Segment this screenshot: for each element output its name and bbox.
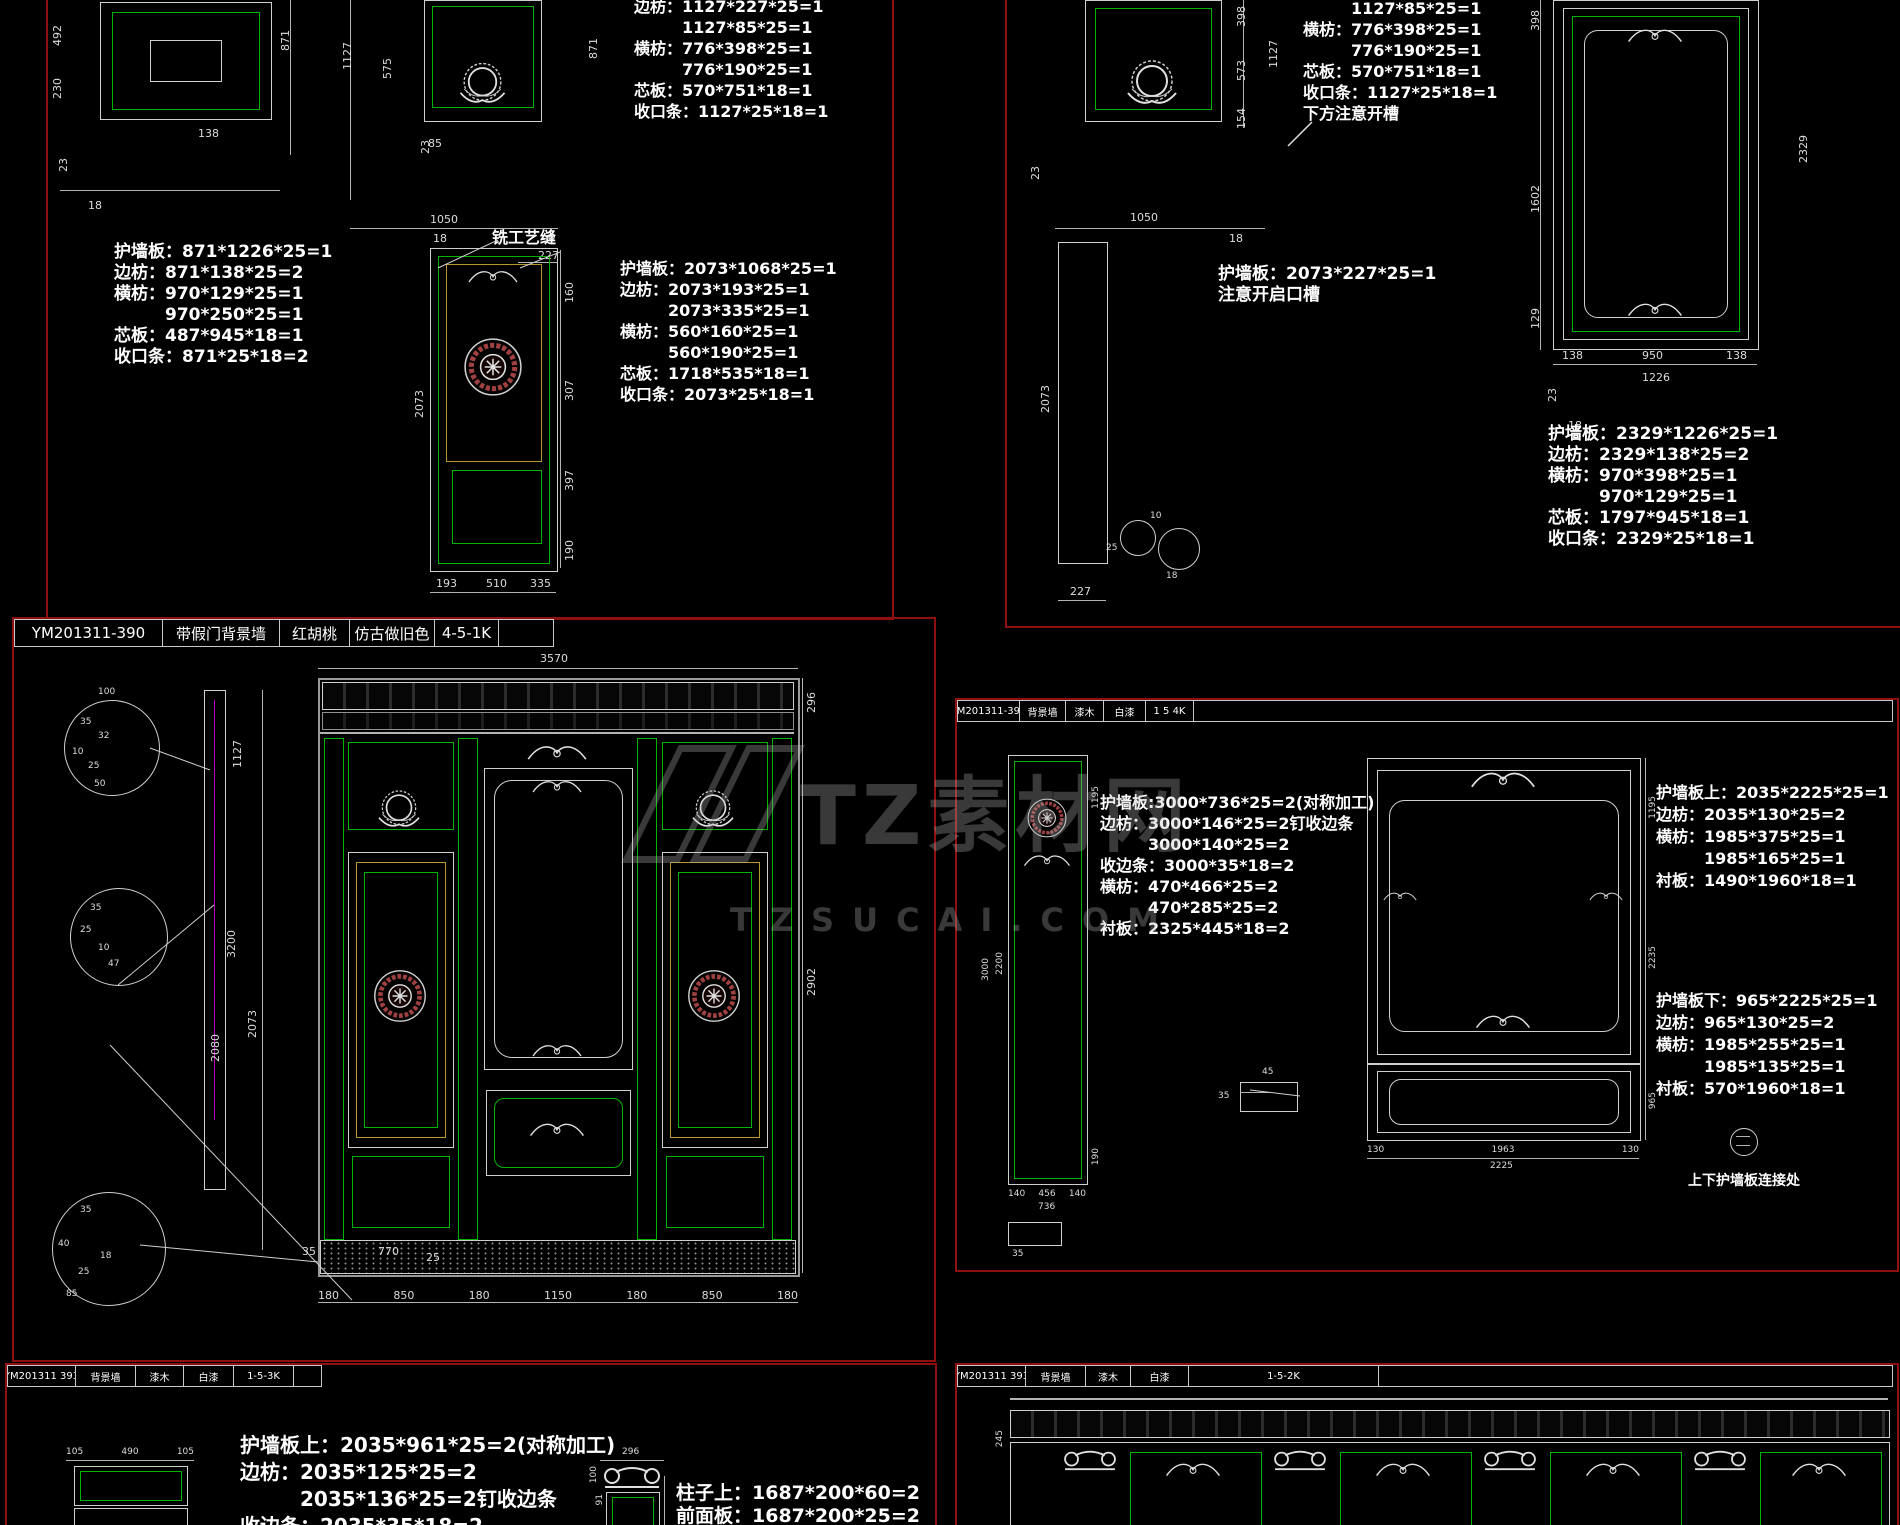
spec-line: 横枋：1985*255*25=1	[1656, 1034, 1877, 1056]
spec-line: 衬板：2325*445*18=2	[1100, 918, 1375, 939]
column-capital	[1692, 1448, 1748, 1472]
top-rail	[1010, 1398, 1888, 1400]
column-capital	[1272, 1448, 1328, 1472]
wreath-ornament	[372, 786, 426, 836]
spec-block-tr-top: 1127*85*25=1横枋：776*398*25=1 776*190*25=1…	[1303, 0, 1497, 124]
dim-label: 510	[486, 578, 507, 589]
detail-circle	[1120, 520, 1156, 556]
connector-note: 上下护墙板连接处	[1688, 1170, 1800, 1190]
dim-label: 18	[100, 1252, 111, 1261]
br-cornice-frieze	[1010, 1410, 1890, 1438]
spec-line: 776*190*25=1	[634, 59, 828, 80]
spec-line: 护墙板：2073*1068*25=1	[620, 258, 837, 279]
spec-line: 护墙板下：965*2225*25=1	[1656, 990, 1877, 1012]
dim-label: 18	[433, 233, 447, 244]
spec-line: 横枋：1985*375*25=1	[1656, 826, 1889, 848]
spec-line: 芯板：570*751*18=1	[634, 80, 828, 101]
dim-label: 35	[302, 1246, 316, 1257]
dim-line	[262, 690, 263, 1250]
center-flourish	[524, 1040, 590, 1060]
cartouche-ornament	[1622, 298, 1688, 320]
dim-label: 130	[1622, 1146, 1639, 1155]
spec-line: 边枋：2035*125*25=2	[240, 1459, 615, 1486]
main-title-bar: YM201311-390 带假门背景墙 红胡桃 仿古做旧色 4-5-1K	[14, 619, 554, 647]
dim-label: 871	[280, 30, 291, 51]
spec-line: 970*250*25=1	[114, 305, 332, 326]
dim-label: 2902	[806, 968, 817, 996]
dim-label: 3000	[982, 958, 991, 981]
spec-block-mr-upper: 护墙板上：2035*2225*25=1边枋：2035*130*25=2横枋：19…	[1656, 782, 1889, 892]
spec-line: 下方注意开槽	[1303, 103, 1497, 124]
dim-line	[318, 1302, 798, 1303]
drawing-finish: 仿古做旧色	[350, 620, 435, 646]
spec-line: 收口条：1127*25*18=1	[1303, 82, 1497, 103]
spec-line: 护墙板:3000*736*25=2(对称加工)	[1100, 792, 1375, 813]
spec-line: 1985*135*25=1	[1656, 1056, 1877, 1078]
dim-line	[1553, 364, 1757, 365]
dim-label: 25	[1106, 544, 1117, 553]
dim-label: 85	[66, 1290, 77, 1299]
spec-line: 边枋：2329*138*25=2	[1548, 445, 1778, 466]
dim-label: 307	[564, 380, 575, 401]
center-panel-field	[494, 780, 623, 1058]
dim-label: 105	[66, 1448, 83, 1457]
dim-label: 190	[1092, 1148, 1101, 1165]
dim-label: 193	[436, 578, 457, 589]
center-lower-flourish	[524, 1118, 590, 1140]
dim-label: 335	[530, 578, 551, 589]
drawing-finish: 白漆	[184, 1366, 234, 1386]
stile	[637, 738, 657, 1240]
drawing-name: 带假门背景墙	[163, 620, 280, 646]
drawing-name: 背景墙	[1020, 701, 1066, 721]
dim-label: 296	[806, 692, 817, 713]
dim-label: 180	[626, 1290, 647, 1301]
spec-block-tl-top: 边枋：1127*227*25=1 1127*85*25=1横枋：776*398*…	[634, 0, 828, 122]
spec-line: 芯板：1718*535*18=1	[620, 363, 837, 384]
dim-line	[1058, 600, 1106, 601]
dim-label: 105	[177, 1448, 194, 1457]
door-medallion	[462, 336, 524, 398]
corner-flourish	[1588, 888, 1624, 904]
drawing-material: 红胡桃	[280, 620, 350, 646]
drawing-finish: 白漆	[1131, 1366, 1189, 1386]
dim-label: 2225	[1490, 1162, 1513, 1171]
cartouche-ornament	[1470, 1010, 1536, 1032]
dim-label: 2073	[414, 390, 425, 418]
spec-line: 边枋：965*130*25=2	[1656, 1012, 1877, 1034]
dim-label: 398	[1530, 10, 1541, 31]
dim-label: 245	[996, 1430, 1005, 1447]
mr-title-bar: YM201311-393 背景墙 漆木 白漆 1 5 4K	[957, 700, 1893, 722]
spec-line: 横枋：970*129*25=1	[114, 284, 332, 305]
spec-line: 边枋：3000*146*25=2钉收边条	[1100, 813, 1375, 834]
dim-label: 47	[108, 960, 119, 969]
dim-label: 2200	[996, 952, 1005, 975]
drawing-size-code: 1-5-3K	[234, 1366, 294, 1386]
dim-label: 1963	[1492, 1146, 1515, 1155]
dim-label: 227	[1070, 586, 1091, 597]
spec-block-bl-column: 柱子上：1687*200*60=2前面板：1687*200*25=2	[676, 1482, 920, 1525]
dim-label: 18	[1229, 233, 1243, 244]
dim-label: 2073	[247, 1010, 258, 1038]
dim-label: 45	[1262, 1068, 1273, 1077]
drawing-size-code: 1 5 4K	[1146, 701, 1194, 721]
cartouche-ornament	[1622, 24, 1688, 46]
dim-label: 1127	[342, 42, 353, 70]
pilaster-ornament	[1026, 790, 1068, 846]
column-shaft-green	[612, 1497, 654, 1525]
elev-dim-chain: 1301963130	[1367, 1146, 1639, 1155]
center-flourish	[524, 776, 590, 796]
drawing-finish: 白漆	[1104, 701, 1146, 721]
connector-mark	[1736, 1145, 1750, 1146]
dim-label: 456	[1038, 1190, 1055, 1199]
dim-label: 296	[622, 1448, 639, 1457]
dim-label: 40	[58, 1240, 69, 1249]
dim-line	[802, 678, 803, 1273]
spec-line: 注意开启口槽	[1218, 285, 1436, 306]
molding-profile	[1240, 1082, 1298, 1112]
craft-seam-note: 铣工艺缝	[492, 224, 556, 248]
spec-line: 776*190*25=1	[1303, 40, 1497, 61]
door-medallion	[372, 968, 428, 1024]
stile	[772, 738, 792, 1240]
dim-label: 950	[1642, 350, 1663, 361]
dim-label: 180	[469, 1290, 490, 1301]
drawing-name: 背景墙	[1026, 1366, 1086, 1386]
dim-label: 23	[420, 140, 431, 154]
dim-label: 25	[426, 1252, 440, 1263]
spec-line: 1985*165*25=1	[1656, 848, 1889, 870]
bl-small-panel-green	[80, 1471, 182, 1501]
cartouche-ornament	[1160, 1458, 1226, 1480]
cartouche-ornament	[1786, 1458, 1852, 1480]
corner-flourish	[1382, 888, 1418, 904]
spec-line: 收口条：1127*25*18=1	[634, 101, 828, 122]
dim-label: 1127	[1268, 40, 1279, 68]
dim-label: 18	[88, 200, 102, 211]
cad-sheet: 492 230 138 23 18 871 1127 575 85 871 10…	[0, 0, 1900, 1525]
dim-label: 180	[777, 1290, 798, 1301]
dim-label: 10	[98, 944, 109, 953]
divider-line	[664, 1476, 665, 1525]
dim-label: 130	[1367, 1146, 1384, 1155]
empty-cell	[499, 620, 553, 646]
spec-block-tl-mid: 护墙板：2073*1068*25=1边枋：2073*193*25=1 2073*…	[620, 258, 837, 405]
dim-label: 3570	[540, 653, 568, 664]
wall-frieze	[322, 682, 794, 710]
dim-label: 1150	[544, 1290, 572, 1301]
dim-label: 25	[78, 1268, 89, 1277]
drawing-number: YM201311 393	[958, 1366, 1026, 1386]
dim-label: 397	[564, 470, 575, 491]
dim-label: 2235	[1649, 946, 1658, 969]
bl-small-panel-2	[74, 1508, 188, 1525]
profile-step	[1240, 1092, 1270, 1093]
center-top-flourish	[520, 740, 594, 764]
cornice-line	[320, 732, 794, 734]
drawing-number: YM201311 393	[8, 1366, 76, 1386]
dim-line	[1540, 0, 1541, 350]
dim-label: 23	[58, 158, 69, 172]
empty-cell	[1194, 701, 1892, 721]
dim-label: 35	[80, 718, 91, 727]
dim-label: 50	[94, 780, 105, 789]
drawing-material: 漆木	[136, 1366, 184, 1386]
cartouche-ornament	[1580, 1458, 1646, 1480]
spec-line: 边枋：1127*227*25=1	[634, 0, 828, 17]
spec-block-bl-wall: 护墙板上：2035*961*25=2(对称加工)边枋：2035*125*25=2…	[240, 1432, 615, 1525]
dim-label: 850	[393, 1290, 414, 1301]
detail-circle	[70, 888, 168, 986]
dim-label: 871	[588, 38, 599, 59]
column-capital	[602, 1464, 662, 1490]
pilaster-plan-detail	[1008, 1222, 1062, 1246]
dim-label: 138	[198, 128, 219, 139]
empty-cell	[1379, 1366, 1892, 1386]
dim-label: 35	[1218, 1092, 1229, 1101]
spec-line: 1127*85*25=1	[1303, 0, 1497, 19]
dim-label: 10	[72, 748, 83, 757]
dim-label: 25	[80, 926, 91, 935]
dim-line	[1367, 1158, 1639, 1159]
dim-label: 10	[1150, 512, 1161, 521]
spec-block-tr-mid: 护墙板：2073*227*25=1注意开启口槽	[1218, 264, 1436, 306]
spec-block-tl-left: 护墙板：871*1226*25=1边枋：871*138*25=2横枋：970*1…	[114, 242, 332, 368]
cartouche-ornament	[1370, 1458, 1436, 1480]
spec-line: 收边条：2035*35*18=2	[240, 1513, 615, 1525]
dim-label: 23	[1547, 388, 1558, 402]
dim-label: 1050	[1130, 212, 1158, 223]
br-title-bar: YM201311 393 背景墙 漆木 白漆 1-5-2K	[957, 1365, 1893, 1387]
spec-line: 横枋：776*398*25=1	[1303, 19, 1497, 40]
drawing-number: YM201311-390	[15, 620, 163, 646]
door-top-flourish	[462, 266, 524, 286]
spec-line: 前面板：1687*200*25=2	[676, 1505, 920, 1525]
spec-line: 边枋：871*138*25=2	[114, 263, 332, 284]
dim-label: 140	[1008, 1190, 1025, 1199]
dim-label: 770	[378, 1246, 399, 1257]
pilaster-flourish	[1022, 850, 1072, 870]
dim-label: 2073	[1040, 385, 1051, 413]
tl-panel-tablet	[150, 40, 222, 82]
drawing-material: 漆木	[1066, 701, 1104, 721]
dim-label: 138	[1726, 350, 1747, 361]
connector-symbol	[1730, 1128, 1758, 1156]
dim-label: 129	[1530, 308, 1541, 329]
dim-label: 1050	[430, 214, 458, 225]
dim-line	[600, 1460, 664, 1461]
spec-line: 1127*85*25=1	[634, 17, 828, 38]
dim-label: 100	[98, 688, 115, 697]
dim-line	[430, 592, 556, 593]
dim-label: 2080	[210, 1034, 221, 1062]
spec-line: 护墙板：2073*227*25=1	[1218, 264, 1436, 285]
dim-label: 180	[318, 1290, 339, 1301]
dim-label: 190	[564, 540, 575, 561]
spec-line: 收边条：3000*35*18=2	[1100, 855, 1375, 876]
dim-line	[60, 190, 280, 191]
pilaster-dim-chain: 140456140	[1008, 1190, 1086, 1199]
connector-mark	[1736, 1136, 1750, 1137]
door-medallion	[686, 968, 742, 1024]
dim-label: 100	[590, 1466, 599, 1483]
dim-label: 230	[52, 78, 63, 99]
spec-line: 护墙板上：2035*961*25=2(对称加工)	[240, 1432, 615, 1459]
spec-line: 2073*335*25=1	[620, 300, 837, 321]
dim-label: 23	[1030, 166, 1041, 180]
bl-dim-chain: 105490105	[66, 1448, 194, 1457]
spec-line: 3000*140*25=2	[1100, 834, 1375, 855]
spec-line: 收口条：2073*25*18=1	[620, 384, 837, 405]
dim-label: 736	[1038, 1203, 1055, 1212]
stile	[458, 738, 478, 1240]
dim-label: 154	[1236, 108, 1247, 129]
dim-label: 138	[1562, 350, 1583, 361]
spec-line: 芯板：1797*945*18=1	[1548, 508, 1778, 529]
dim-label: 25	[88, 762, 99, 771]
dim-line	[560, 250, 561, 568]
drawing-material: 漆木	[1086, 1366, 1131, 1386]
dim-label: 35	[80, 1206, 91, 1215]
wreath-ornament	[455, 58, 510, 113]
spec-block-tr-right: 护墙板：2329*1226*25=1边枋：2329*138*25=2横枋：970…	[1548, 424, 1778, 550]
tr-wall-panel-field	[1584, 30, 1728, 318]
empty-cell	[294, 1366, 321, 1386]
mr-wall-lower-field	[1389, 1079, 1619, 1125]
dim-label: 18	[1166, 572, 1177, 581]
bottom-dim-chain: 1808501801150180850180	[318, 1290, 798, 1301]
mr-wall-upper-field	[1389, 800, 1619, 1032]
spec-line: 边枋：2073*193*25=1	[620, 279, 837, 300]
dim-label: 492	[52, 25, 63, 46]
spec-line: 护墙板：2329*1226*25=1	[1548, 424, 1778, 445]
right-door-bottom-panel	[666, 1156, 764, 1228]
dim-label: 575	[382, 58, 393, 79]
spec-line: 横枋：970*398*25=1	[1548, 466, 1778, 487]
drawing-number: YM201311-393	[958, 701, 1020, 721]
tr-strip-elevation	[1058, 242, 1108, 564]
dim-label: 2329	[1798, 135, 1809, 163]
spec-block-mr-left: 护墙板:3000*736*25=2(对称加工)边枋：3000*146*25=2钉…	[1100, 792, 1375, 939]
spec-line: 衬板：570*1960*18=1	[1656, 1078, 1877, 1100]
bl-title-bar: YM201311 393 背景墙 漆木 白漆 1-5-3K	[7, 1365, 322, 1387]
spec-block-mr-lower: 护墙板下：965*2225*25=1边枋：965*130*25=2横枋：1985…	[1656, 990, 1877, 1100]
wall-frieze-2	[322, 712, 794, 730]
spec-line: 衬板：1490*1960*18=1	[1656, 870, 1889, 892]
spec-line: 边枋：2035*130*25=2	[1656, 804, 1889, 826]
dim-label: 35	[90, 904, 101, 913]
spec-line: 护墙板：871*1226*25=1	[114, 242, 332, 263]
spec-line: 横枋：776*398*25=1	[634, 38, 828, 59]
dim-label: 490	[121, 1448, 138, 1457]
dim-label: 140	[1069, 1190, 1086, 1199]
divider-line	[350, 0, 351, 200]
stile	[324, 738, 344, 1240]
drawing-size-code: 1-5-2K	[1189, 1366, 1379, 1386]
dim-line	[66, 1460, 194, 1461]
drawing-size-code: 4-5-1K	[435, 620, 499, 646]
detail-circle	[1158, 528, 1200, 570]
dim-label: 91	[596, 1494, 605, 1505]
spec-line: 横枋：470*466*25=2	[1100, 876, 1375, 897]
spec-line: 收口条：871*25*18=2	[114, 347, 332, 368]
spec-line: 柱子上：1687*200*60=2	[676, 1482, 920, 1505]
column-capital	[1062, 1448, 1118, 1472]
dim-label: 1127	[232, 740, 243, 768]
cartouche-ornament	[1468, 766, 1538, 792]
spec-line: 横枋：560*160*25=1	[620, 321, 837, 342]
wreath-ornament	[686, 786, 740, 836]
dim-label: 1602	[1530, 185, 1541, 213]
spec-line: 芯板：570*751*18=1	[1303, 61, 1497, 82]
dim-label: 1226	[1642, 372, 1670, 383]
spec-line: 970*129*25=1	[1548, 487, 1778, 508]
dim-label: 850	[702, 1290, 723, 1301]
drawing-name: 背景墙	[76, 1366, 136, 1386]
column-capital	[1482, 1448, 1538, 1472]
left-door-bottom-panel	[352, 1156, 450, 1228]
dim-label: 35	[1012, 1250, 1023, 1259]
dim-label: 398	[1236, 6, 1247, 27]
dim-line	[1055, 228, 1265, 229]
dim-label: 160	[564, 282, 575, 303]
dim-line	[1645, 758, 1646, 1140]
spec-line: 护墙板上：2035*2225*25=1	[1656, 782, 1889, 804]
dim-label: 3200	[226, 930, 237, 958]
tl-door-lower-panel	[452, 470, 542, 544]
spec-line: 470*285*25=2	[1100, 897, 1375, 918]
pilaster-profile-strip	[204, 690, 226, 1190]
dim-label: 573	[1236, 60, 1247, 81]
wreath-ornament	[1122, 55, 1182, 115]
spec-line: 收口条：2329*25*18=1	[1548, 529, 1778, 550]
spec-line: 2035*136*25=2钉收边条	[240, 1486, 615, 1513]
dim-line	[318, 668, 798, 669]
spec-line: 560*190*25=1	[620, 342, 837, 363]
divider-line	[290, 0, 291, 155]
dim-label: 32	[98, 732, 109, 741]
spec-line: 芯板：487*945*18=1	[114, 326, 332, 347]
